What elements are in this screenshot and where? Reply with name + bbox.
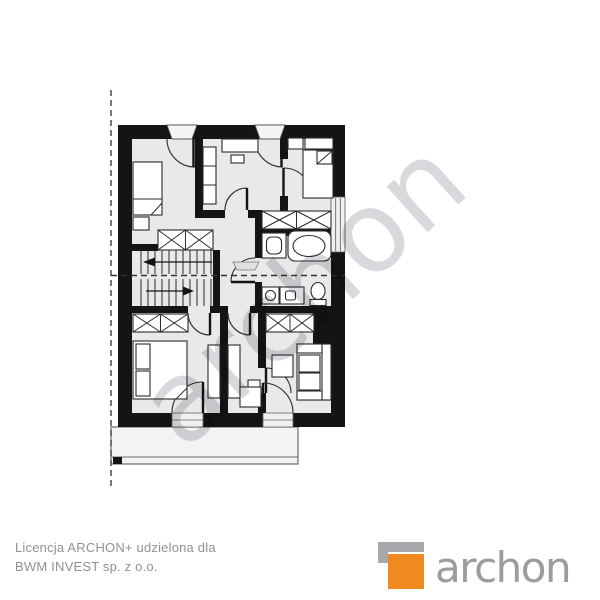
license-text: Licencja ARCHON+ udzielona dla BWM INVES… <box>15 538 216 576</box>
license-line1: Licencja ARCHON+ udzielona dla <box>15 538 216 557</box>
wardrobe-icon <box>266 314 314 332</box>
logo-bracket-left <box>378 542 388 563</box>
sofa-icon <box>297 344 331 400</box>
right-window <box>331 197 345 252</box>
wardrobe-icon <box>228 345 240 398</box>
logo-orange-square-icon <box>388 554 424 589</box>
terrace <box>111 427 298 464</box>
pillow-icon <box>136 371 150 396</box>
desk-icon <box>222 139 258 152</box>
wardrobe-icon <box>262 211 331 229</box>
wardrobe-icon <box>203 147 216 204</box>
headboard-icon <box>305 138 333 149</box>
table-icon <box>272 355 293 377</box>
wardrobe-icon <box>208 345 220 398</box>
toilet-icon <box>310 283 326 306</box>
top-window-right <box>255 125 285 139</box>
dresser-icon <box>240 387 261 407</box>
wardrobe-icon <box>133 314 188 332</box>
top-window-left <box>167 125 197 139</box>
floor-plan <box>0 0 600 600</box>
page: archon Licencja ARCHON+ udzielona dla BW… <box>0 0 600 600</box>
pillow-icon <box>136 344 150 369</box>
logo-wordmark: archon <box>435 547 570 589</box>
threshold <box>233 262 259 270</box>
chair-icon <box>231 155 244 163</box>
nightstand-icon <box>133 217 149 230</box>
nightstand-icon <box>288 138 303 149</box>
wardrobe-icon <box>158 230 213 250</box>
archon-logo: archon <box>378 541 588 591</box>
license-line2: BWM INVEST sp. z o.o. <box>15 557 216 576</box>
